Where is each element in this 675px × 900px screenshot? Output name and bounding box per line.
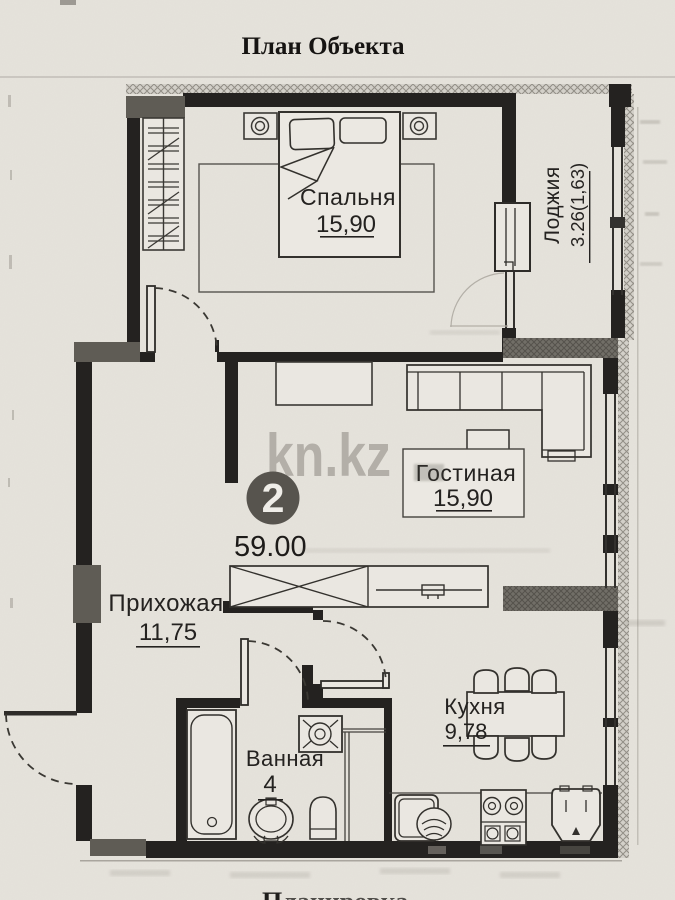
svg-text:11,75: 11,75 [139, 619, 197, 646]
svg-text:Ванная: Ванная [246, 746, 324, 771]
svg-text:Планировка: Планировка [262, 887, 408, 900]
svg-text:15,90: 15,90 [316, 211, 376, 238]
svg-text:3.26(1,63): 3.26(1,63) [567, 163, 588, 247]
svg-text:Кухня: Кухня [444, 694, 505, 719]
svg-text:План Объекта: План Объекта [241, 33, 405, 60]
svg-text:2: 2 [262, 475, 285, 521]
svg-text:Прихожая: Прихожая [108, 590, 223, 617]
svg-text:4: 4 [263, 771, 276, 798]
svg-text:Лоджия: Лоджия [541, 166, 564, 243]
svg-text:59.00: 59.00 [234, 531, 307, 563]
svg-text:9,78: 9,78 [445, 719, 488, 744]
svg-text:Спальня: Спальня [300, 184, 396, 210]
svg-text:15,90: 15,90 [433, 485, 493, 512]
